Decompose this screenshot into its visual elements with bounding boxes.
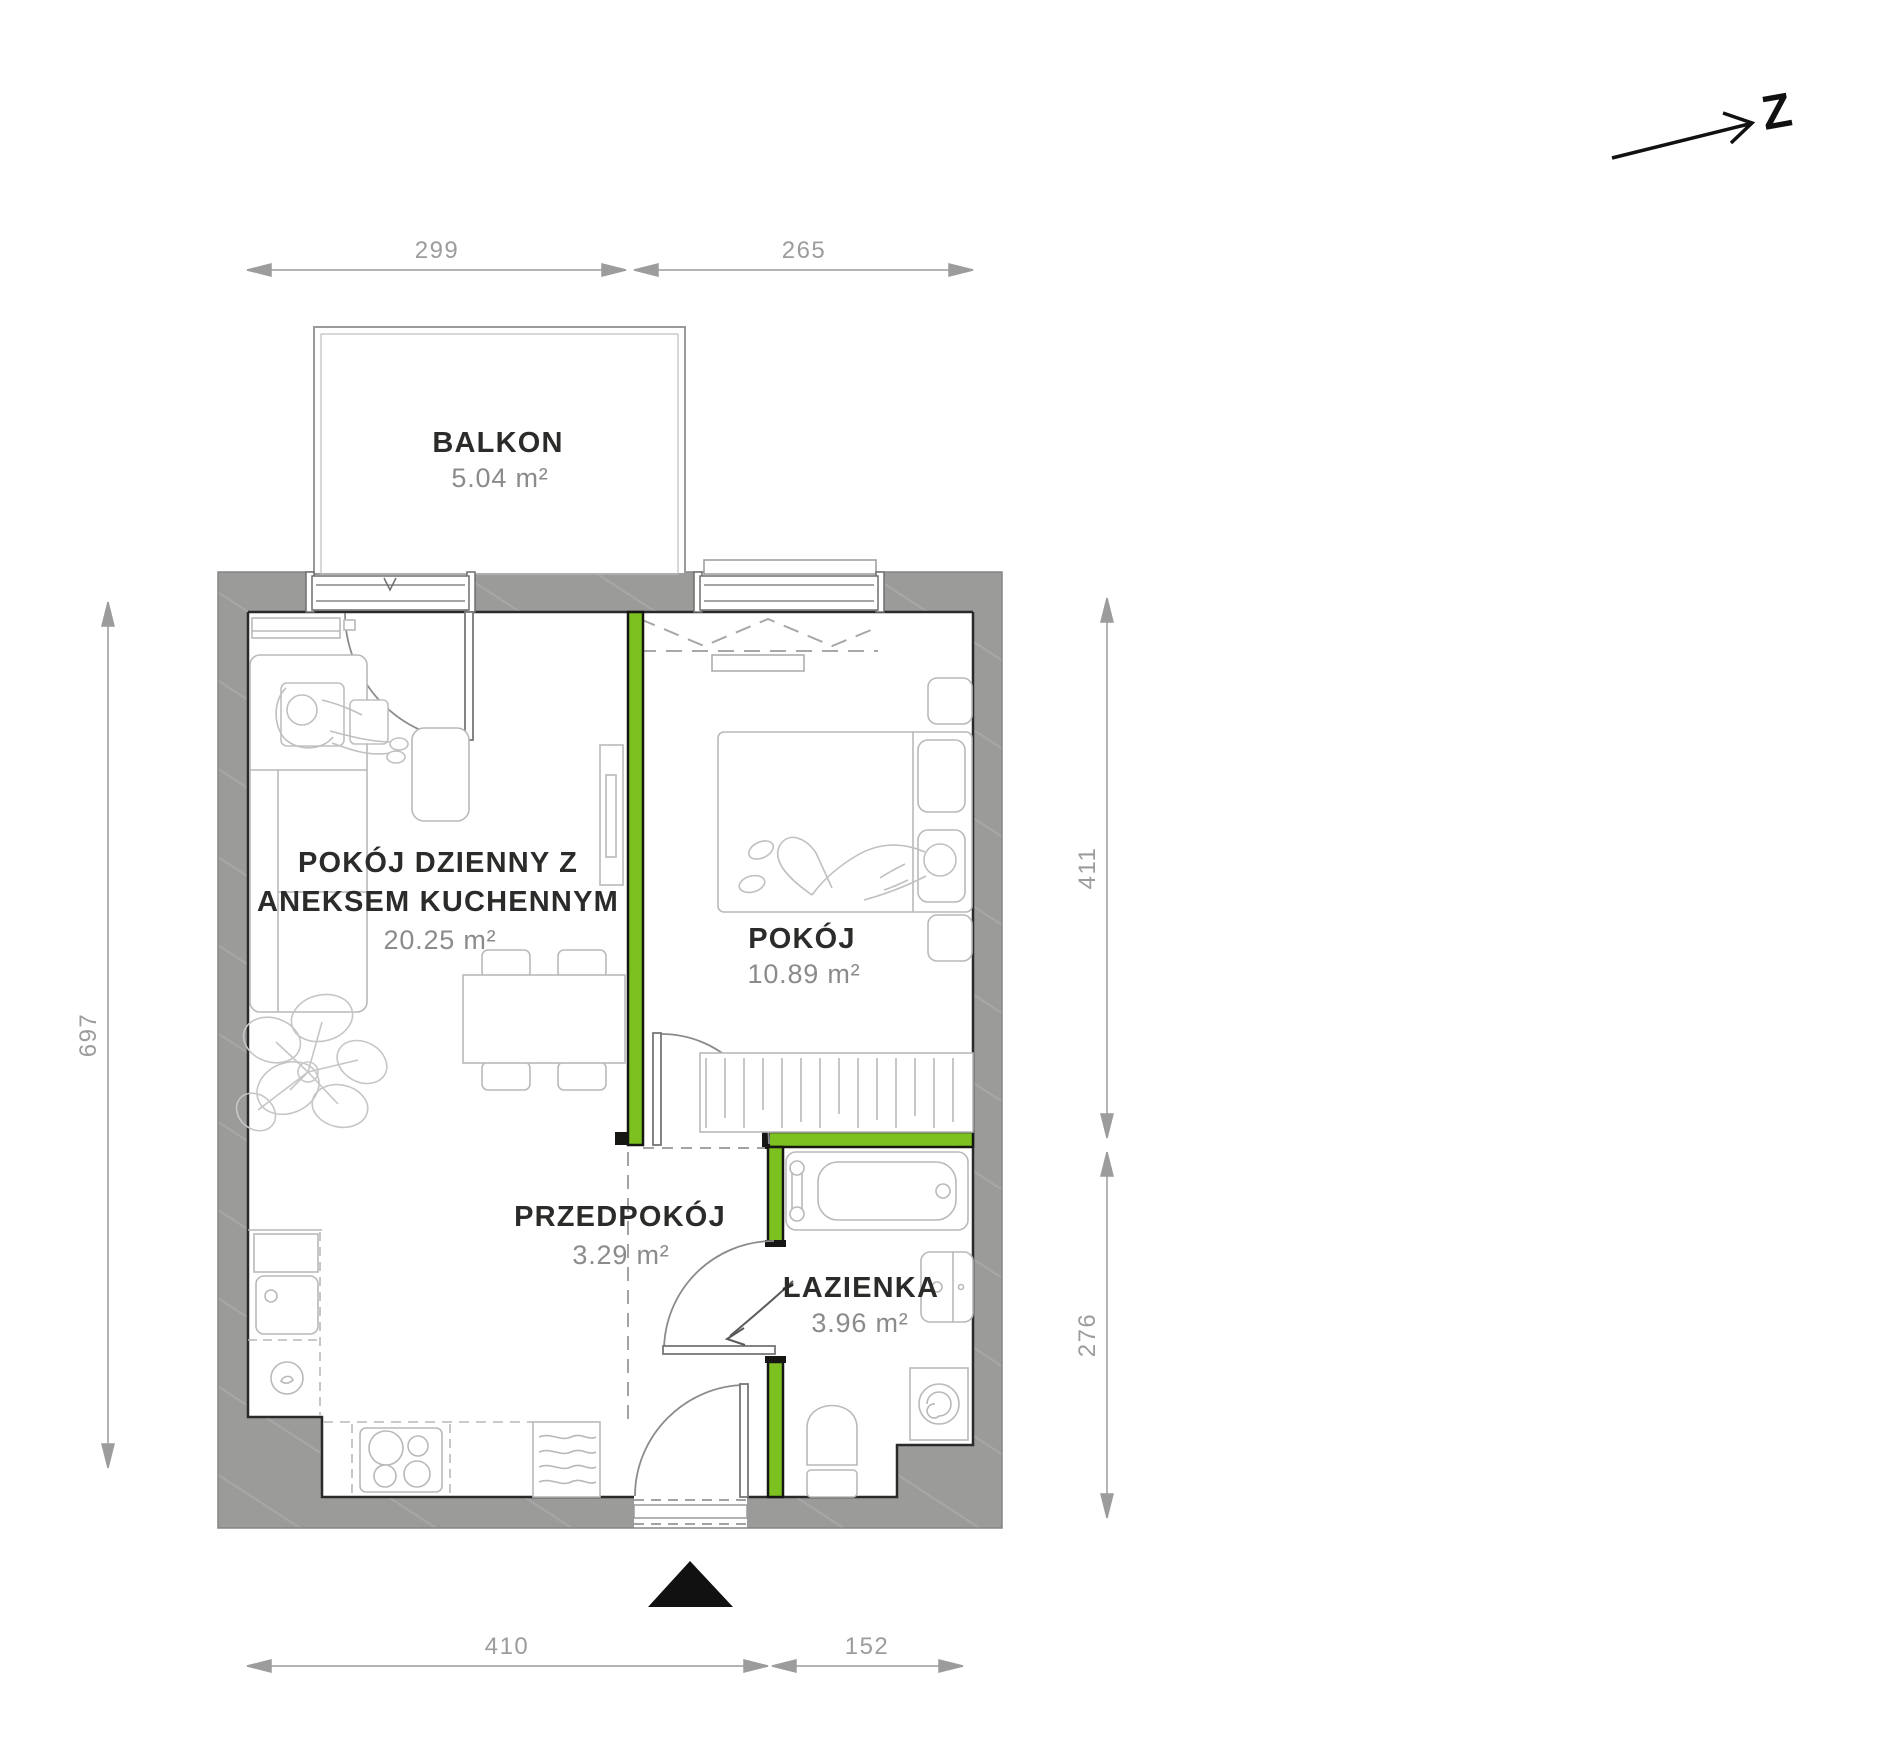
compass: Z (1612, 84, 1796, 158)
kitchen-appliance (254, 1234, 318, 1272)
balcony-window (306, 572, 475, 612)
floor-plan: 299 265 697 411 276 410 152 BALKON 5.04 … (0, 0, 1900, 1758)
room-label-bath: ŁAZIENKA (783, 1272, 939, 1304)
toilet (807, 1406, 857, 1498)
entry-door (635, 1384, 748, 1497)
nightstand-top (928, 678, 972, 724)
dim-left: 697 (75, 1013, 102, 1058)
dim-bottom-left: 410 (485, 1633, 530, 1660)
sideboard (252, 618, 355, 638)
dim-bottom-right: 152 (845, 1633, 890, 1660)
radiator-dashes (640, 619, 878, 651)
room-area-bedroom: 10.89 m² (748, 959, 861, 989)
room-label-hall: PRZEDPOKÓJ (514, 1199, 726, 1233)
dim-right-lower: 276 (1074, 1313, 1101, 1358)
bed (718, 732, 972, 912)
kitchen-basin-round (271, 1362, 303, 1394)
room-area-bath: 3.96 m² (811, 1308, 908, 1338)
room-area-balkon: 5.04 m² (451, 463, 548, 493)
tv-console (600, 745, 623, 885)
bedroom-window (694, 560, 884, 612)
bathtub (786, 1152, 968, 1230)
entry-wardrobe (533, 1422, 600, 1497)
floor-plan-page: 299 265 697 411 276 410 152 BALKON 5.04 … (0, 0, 1900, 1758)
room-label-living-1: POKÓJ DZIENNY Z (298, 845, 578, 879)
dining-table (463, 950, 625, 1090)
nightstand-bottom (928, 915, 972, 961)
coffee-table (412, 728, 469, 821)
room-area-hall: 3.29 m² (572, 1240, 669, 1270)
bathroom-door (663, 1241, 775, 1354)
dim-top-right: 265 (782, 237, 827, 264)
room-label-balkon: BALKON (432, 427, 563, 459)
bedroom-wardrobe (700, 1053, 973, 1132)
dim-top-left: 299 (415, 237, 460, 264)
kitchen-sink (256, 1276, 318, 1334)
room-label-bedroom: POKÓJ (748, 921, 856, 955)
cooktop (360, 1428, 442, 1492)
compass-label: Z (1758, 84, 1796, 141)
room-label-living-2: ANEKSEM KUCHENNYM (257, 886, 619, 918)
room-area-living: 20.25 m² (384, 925, 497, 955)
window-sill-shelf (712, 655, 804, 671)
compass-arrow-icon (1612, 113, 1752, 158)
entrance-marker-icon (648, 1561, 733, 1607)
washing-machine (910, 1368, 968, 1440)
dim-right-upper: 411 (1074, 847, 1101, 890)
bedroom-furniture (700, 678, 973, 1132)
